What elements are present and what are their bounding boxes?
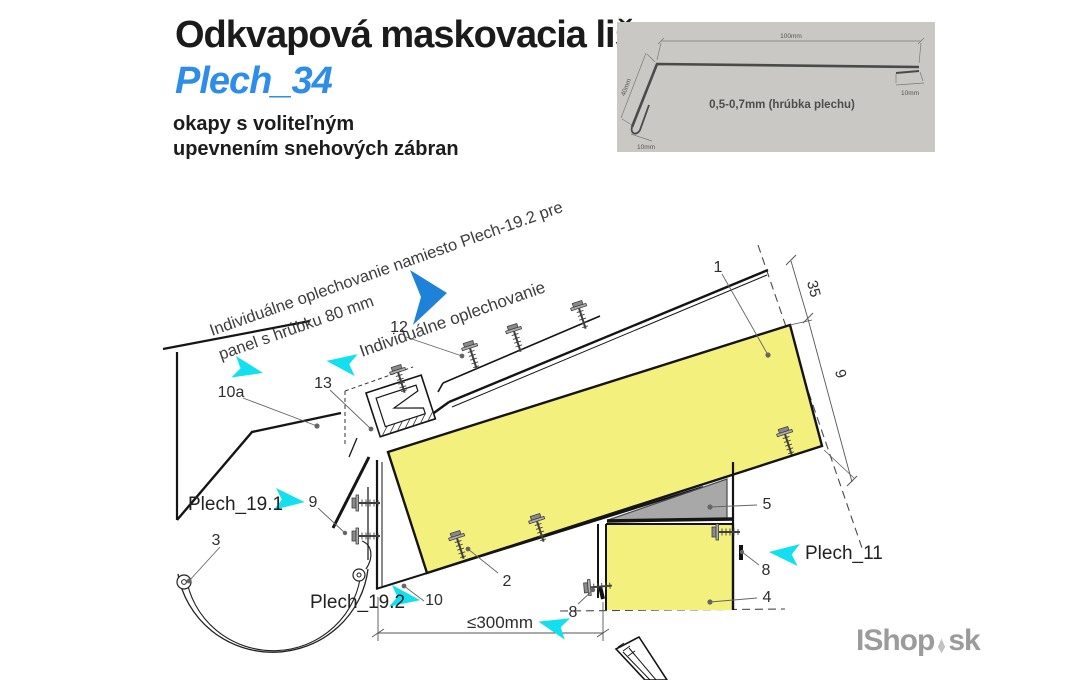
- profile-dimension-labels: 100mm 10mm 40mm 10mm: [620, 33, 919, 151]
- dim-label-300mm: ≤300mm: [467, 613, 533, 632]
- inset-dim-bottom: 10mm: [637, 144, 655, 151]
- part-label-3: 3: [212, 532, 221, 549]
- inset-dim-top: 100mm: [780, 33, 802, 40]
- part-label-13: 13: [314, 375, 332, 392]
- part-label-5: 5: [763, 496, 772, 513]
- profile-inset: 100mm 10mm 40mm 10mm 0,5-0,7mm (hrúbka p…: [617, 22, 935, 152]
- part-label-8-right: 8: [762, 562, 771, 579]
- dim-label-9: 9: [831, 368, 850, 380]
- pointer-arrow-10a: [231, 356, 265, 384]
- pointer-arrow-13: [325, 350, 358, 376]
- page: Odkvapová maskovacia lišta Plech_34 okap…: [0, 0, 1080, 680]
- brand-logo-left: IShop: [856, 624, 934, 658]
- inset-dim-left: 40mm: [620, 78, 633, 97]
- part-label-10: 10: [425, 592, 443, 609]
- snow-guard-bracket: [616, 637, 667, 680]
- brand-logo-right: sk: [948, 624, 979, 658]
- bracket-tick: [349, 438, 357, 457]
- part-label-4: 4: [763, 589, 772, 606]
- dim-label-35: 35: [803, 279, 824, 300]
- callout-plech-11: Plech_11: [805, 543, 883, 564]
- profile-dimension-lines: [621, 38, 924, 141]
- note-individual-flashing-1: Individuálne oplechovanie namiesto Plech…: [207, 198, 565, 340]
- brand-logo: IShop sk: [856, 624, 980, 658]
- part-label-2: 2: [503, 573, 512, 590]
- callout-plech-19-1: Plech_19.1: [188, 494, 283, 515]
- inset-thickness-note: 0,5-0,7mm (hrúbka plechu): [709, 99, 855, 111]
- inset-dim-right: 10mm: [901, 90, 919, 97]
- part-label-12: 12: [390, 319, 408, 336]
- fascia-lines: [333, 457, 382, 588]
- part-label-8-bottom: 8: [569, 604, 578, 621]
- pointer-arrow-plech11: [768, 541, 800, 566]
- part-label-1: 1: [714, 259, 723, 276]
- part-label-9: 9: [309, 494, 318, 511]
- part-label-10a: 10a: [218, 384, 245, 401]
- brand-logo-icon: [936, 638, 947, 654]
- mounting-bracket: [366, 375, 435, 437]
- profile-inset-drawing: 100mm 10mm 40mm 10mm 0,5-0,7mm (hrúbka p…: [617, 22, 935, 152]
- callout-plech-19-2: Plech_19.2: [310, 592, 405, 613]
- pointer-arrow-300mm: [536, 611, 570, 640]
